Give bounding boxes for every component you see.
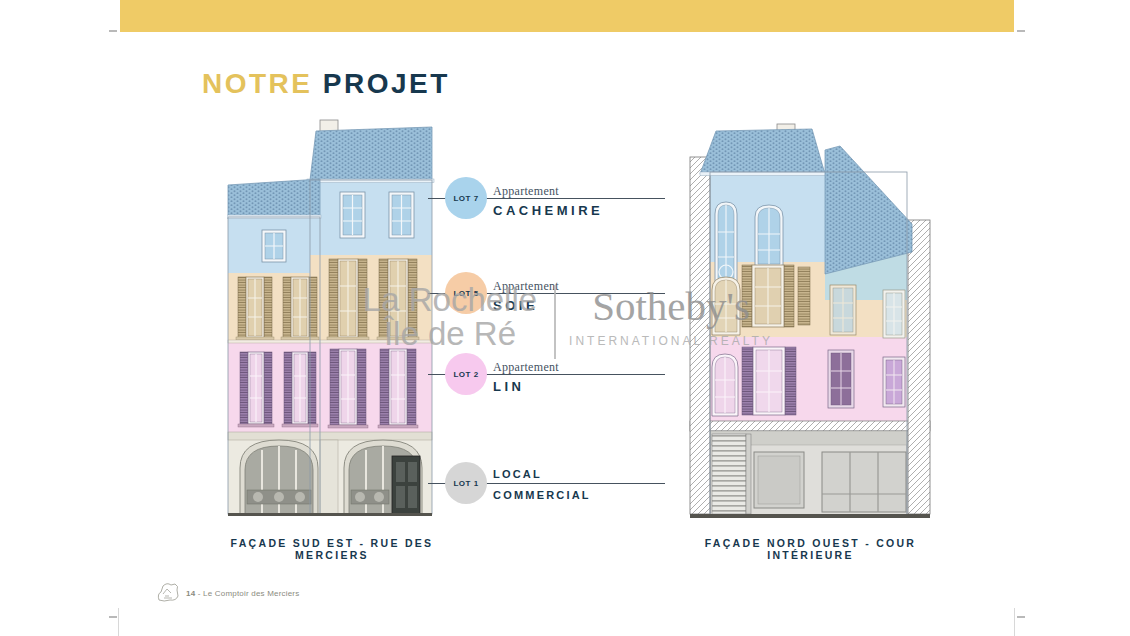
crop-mark — [109, 616, 117, 618]
watermark-divider — [554, 285, 556, 359]
facade-sud-est-caption: FAÇADE SUD EST - RUE DES MERCIERS — [222, 537, 442, 561]
lot-2-badge: LOT 2 — [445, 353, 487, 395]
page-title-secondary: PROJET — [323, 68, 450, 99]
facade-nord-ouest-caption: FAÇADE NORD OUEST - COUR INTÉRIEURE — [683, 537, 938, 561]
slide-edge-line — [118, 608, 119, 636]
crop-mark — [1017, 30, 1025, 32]
lot-2-category: Appartement — [493, 360, 663, 375]
lot-1-category: LOCAL — [493, 468, 668, 480]
lot-2-name: LIN — [493, 379, 668, 394]
crop-mark — [1017, 616, 1025, 618]
page-title-primary: NOTRE — [202, 68, 313, 99]
left-facade — [227, 120, 434, 516]
facade-nord-ouest-drawing — [688, 122, 933, 524]
footer-separator: - — [195, 589, 203, 598]
footer-page-number: 14 — [186, 589, 195, 598]
footer-page-label: 14 - Le Comptoir des Merciers — [186, 589, 299, 598]
lot-5-category: Appartement — [493, 279, 663, 294]
footer-document-title: Le Comptoir des Merciers — [203, 589, 299, 598]
slide-edge-line — [1014, 608, 1015, 636]
lot-5-name: SOIE — [493, 298, 668, 313]
house-sketch-icon — [155, 580, 183, 604]
facade-sud-est-drawing — [227, 118, 437, 524]
lot-7-badge: LOT 7 — [445, 177, 487, 219]
lot-7-category: Appartement — [493, 184, 663, 199]
lot-1-badge: LOT 1 — [445, 462, 487, 504]
right-facade — [690, 124, 930, 518]
top-accent-bar — [120, 0, 1014, 32]
crop-mark — [109, 30, 117, 32]
slide: NOTRE PROJET — [0, 0, 1130, 636]
lot-5-badge: LOT 5 — [445, 272, 487, 314]
lot-7-name: CACHEMIRE — [493, 203, 668, 218]
page-title: NOTRE PROJET — [202, 68, 450, 100]
lot-1-name: COMMERCIAL — [493, 489, 668, 501]
